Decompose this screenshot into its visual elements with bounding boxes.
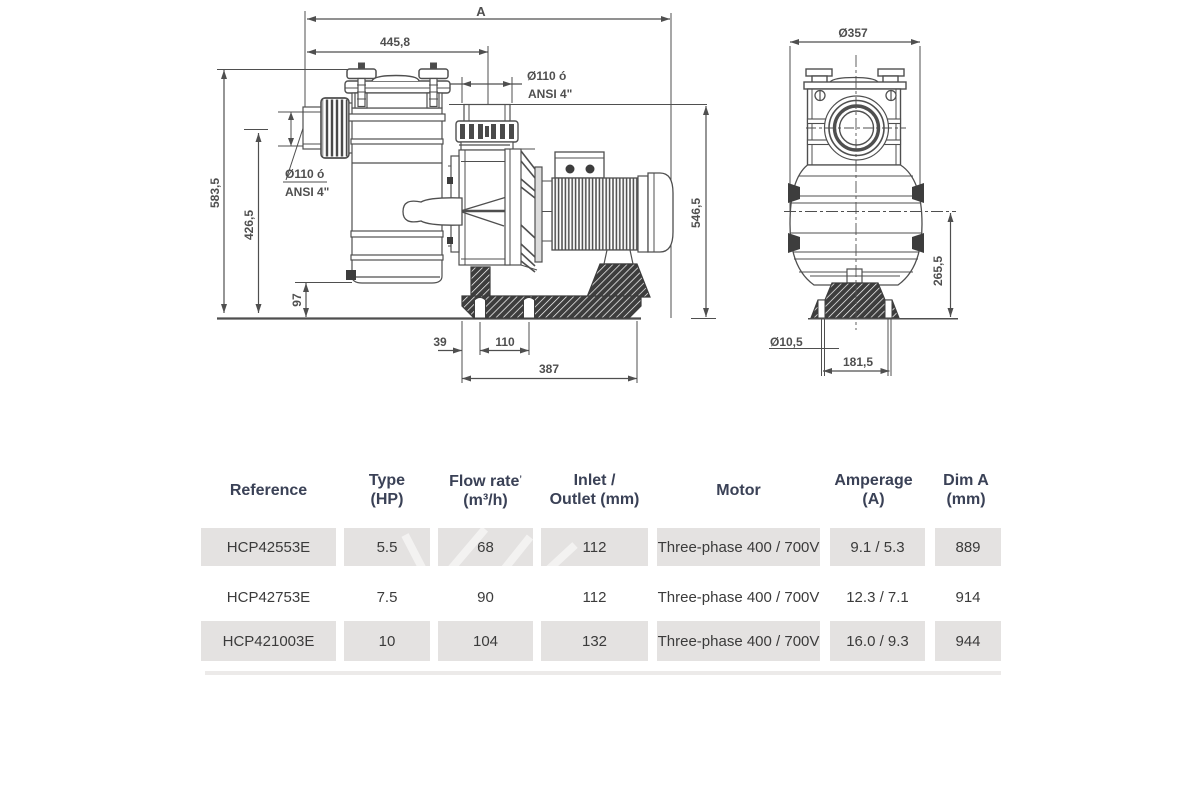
svg-text:426,5: 426,5 (242, 210, 256, 240)
svg-text:A: A (476, 4, 486, 19)
svg-text:39: 39 (433, 335, 447, 349)
svg-text:265,5: 265,5 (931, 256, 945, 286)
svg-text:Ø110 ó: Ø110 ó (285, 167, 324, 181)
svg-text:Ø357: Ø357 (838, 26, 868, 40)
svg-text:Ø10,5: Ø10,5 (770, 335, 803, 349)
svg-text:583,5: 583,5 (208, 178, 222, 208)
svg-text:546,5: 546,5 (689, 198, 703, 228)
svg-text:ANSI 4": ANSI 4" (285, 185, 329, 199)
svg-text:97: 97 (290, 293, 304, 307)
svg-text:387: 387 (539, 362, 559, 376)
svg-text:181,5: 181,5 (843, 355, 873, 369)
svg-text:445,8: 445,8 (380, 35, 410, 49)
svg-text:ANSI 4": ANSI 4" (528, 87, 572, 101)
svg-text:Ø110 ó: Ø110 ó (527, 69, 566, 83)
svg-text:110: 110 (495, 335, 515, 349)
